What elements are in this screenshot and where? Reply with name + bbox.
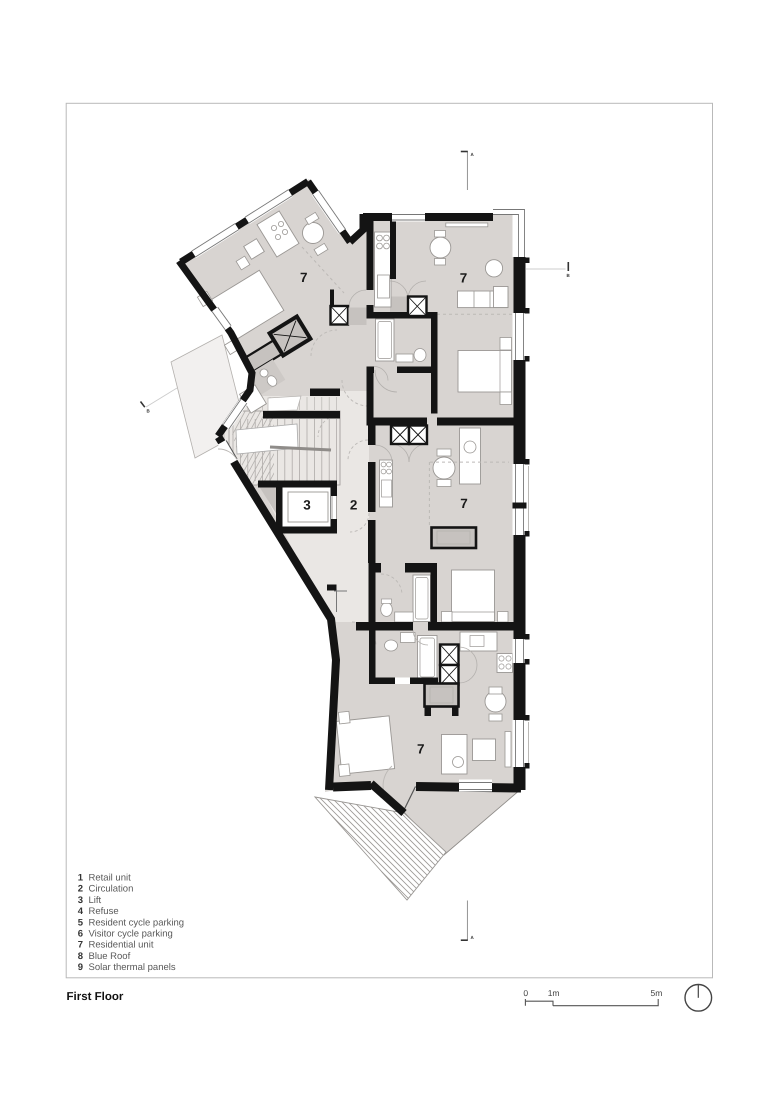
svg-text:2: 2 [350, 498, 358, 513]
svg-text:7: 7 [300, 270, 308, 285]
svg-text:6: 6 [78, 929, 83, 940]
svg-text:First Floor: First Floor [67, 991, 124, 1003]
svg-text:9: 9 [78, 962, 83, 973]
svg-text:5: 5 [78, 917, 84, 928]
svg-text:Visitor cycle parking: Visitor cycle parking [89, 929, 173, 940]
svg-text:Solar thermal panels: Solar thermal panels [89, 962, 176, 973]
svg-text:1m: 1m [548, 988, 560, 998]
svg-text:7: 7 [78, 940, 83, 951]
svg-text:Resident cycle parking: Resident cycle parking [89, 917, 185, 928]
svg-text:3: 3 [78, 895, 83, 906]
svg-text:3: 3 [303, 498, 311, 513]
svg-text:Blue Roof: Blue Roof [89, 951, 131, 962]
svg-text:Refuse: Refuse [89, 906, 119, 917]
svg-text:0: 0 [523, 988, 528, 998]
svg-text:1: 1 [78, 873, 84, 884]
svg-text:Residential unit: Residential unit [89, 940, 154, 951]
svg-text:7: 7 [417, 742, 425, 757]
svg-text:Retail unit: Retail unit [89, 873, 132, 884]
svg-text:8: 8 [78, 951, 83, 962]
svg-text:2: 2 [78, 884, 83, 895]
svg-text:7: 7 [460, 271, 468, 286]
svg-text:5m: 5m [650, 988, 662, 998]
svg-text:7: 7 [460, 496, 468, 511]
svg-text:Lift: Lift [89, 895, 102, 906]
svg-text:Circulation: Circulation [89, 884, 134, 895]
svg-text:4: 4 [78, 906, 84, 917]
